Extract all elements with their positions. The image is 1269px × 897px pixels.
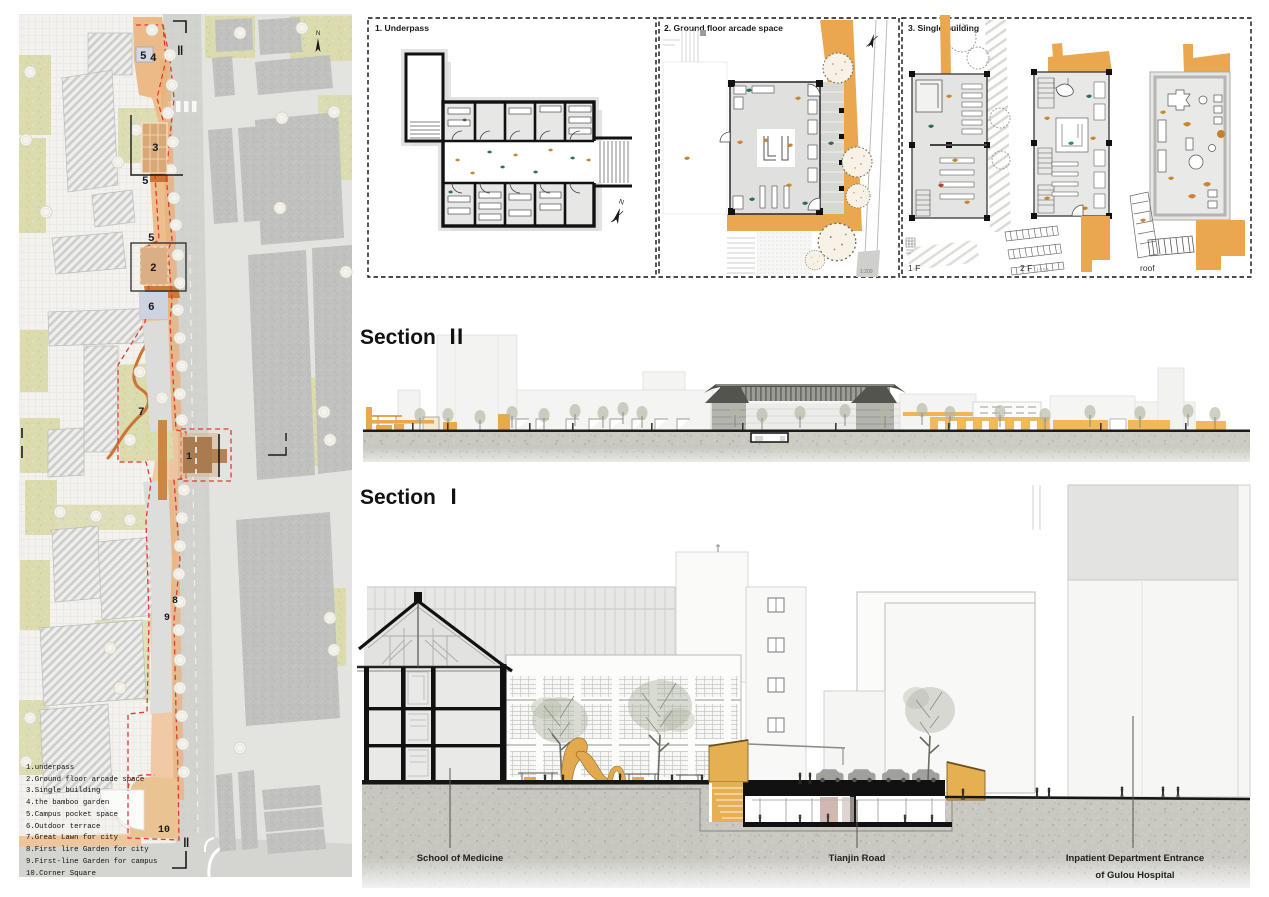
svg-text:Section: Section xyxy=(360,486,436,509)
svg-text:1. Underpass: 1. Underpass xyxy=(375,23,429,33)
svg-text:8: 8 xyxy=(172,596,178,607)
svg-text:4: 4 xyxy=(150,53,157,65)
svg-text:3: 3 xyxy=(152,143,159,155)
svg-text:‖: ‖ xyxy=(183,835,189,850)
svg-text:6: 6 xyxy=(148,302,155,314)
svg-text:5.Campus pocket space: 5.Campus pocket space xyxy=(26,811,118,819)
svg-text:roof: roof xyxy=(1140,263,1155,273)
svg-text:School of Medicine: School of Medicine xyxy=(417,853,504,864)
svg-text:4.the bamboo garden: 4.the bamboo garden xyxy=(26,799,109,807)
svg-text:5: 5 xyxy=(140,51,147,63)
svg-text:10: 10 xyxy=(158,825,170,836)
svg-text:Section: Section xyxy=(360,326,436,349)
svg-text:1: 1 xyxy=(186,452,192,463)
svg-text:2.Ground floor arcade space: 2.Ground floor arcade space xyxy=(26,776,144,784)
svg-text:of Gulou Hospital: of Gulou Hospital xyxy=(1095,870,1174,881)
svg-text:‖: ‖ xyxy=(177,43,183,58)
svg-text:Tianjin Road: Tianjin Road xyxy=(829,853,886,864)
svg-text:2: 2 xyxy=(150,263,157,275)
svg-text:1.underpass: 1.underpass xyxy=(26,764,74,772)
svg-text:1:200: 1:200 xyxy=(860,269,873,275)
svg-text:3.Single building: 3.Single building xyxy=(26,787,100,795)
svg-text:10.Corner Square: 10.Corner Square xyxy=(26,870,96,878)
svg-text:1:150: 1:150 xyxy=(1036,268,1049,274)
svg-text:N: N xyxy=(316,31,320,37)
svg-text:5: 5 xyxy=(142,176,149,188)
svg-text:2 F: 2 F xyxy=(1020,263,1032,273)
svg-text:9.First-line Garden for campus: 9.First-line Garden for campus xyxy=(26,858,157,866)
svg-text:7.Great Lawn for city: 7.Great Lawn for city xyxy=(26,834,119,842)
svg-text:7: 7 xyxy=(138,407,145,419)
svg-text:6.Outdoor terrace: 6.Outdoor terrace xyxy=(26,823,100,831)
svg-text:1 F: 1 F xyxy=(908,263,920,273)
svg-text:9: 9 xyxy=(164,613,170,624)
svg-text:8.First lire Garden for city: 8.First lire Garden for city xyxy=(26,846,149,854)
svg-text:Inpatient Department Entrance: Inpatient Department Entrance xyxy=(1066,853,1204,864)
